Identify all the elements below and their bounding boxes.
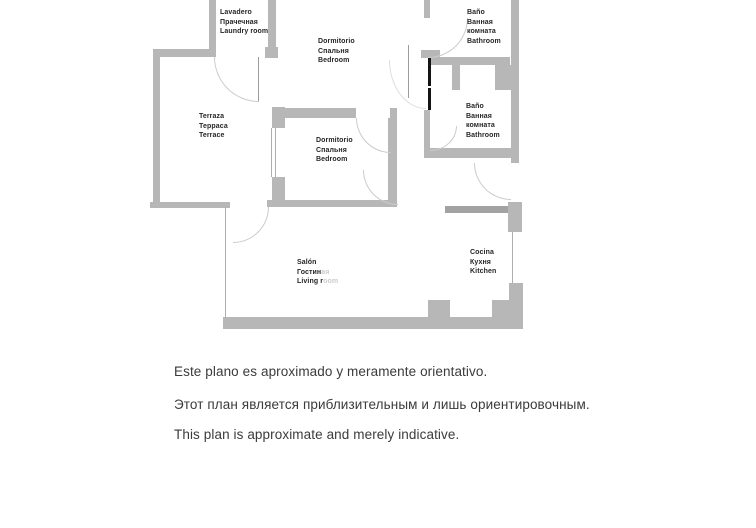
wall-salon-top	[267, 200, 397, 207]
room-label-dormitorio-1: Dormitorio Спальня Bedroom	[318, 37, 355, 66]
wall-window-stub-top	[272, 107, 285, 128]
room-label-line: Cocina	[470, 248, 496, 258]
room-label-line: Bathroom	[467, 37, 501, 47]
wall-bathroom-divider	[430, 57, 510, 65]
room-label-line: Кухня	[470, 258, 496, 268]
room-label-line: Baño	[466, 102, 500, 112]
wall-dormitorio1-bottom-stub	[390, 108, 397, 118]
door-arc-lavadero	[214, 57, 259, 102]
room-label-line: Спальня	[316, 146, 353, 156]
room-label-line: Terraza	[199, 112, 228, 122]
room-label-line: Terrace	[199, 131, 228, 141]
room-label-line: Терраса	[199, 122, 228, 132]
door-arc-salon-west	[233, 207, 269, 243]
floor-plan: Lavadero Прачечная Laundry room Dormitor…	[0, 0, 756, 345]
disclaimer-russian: Этот план является приблизительным и лиш…	[174, 397, 590, 412]
room-label-line: Ванная	[467, 18, 501, 28]
wall-left-outer	[153, 49, 160, 207]
wall-terraza-top	[153, 49, 216, 57]
room-label-line: Baño	[467, 8, 501, 18]
wall-dormitorio1-bottom	[277, 108, 356, 118]
disclaimer-spanish: Este plano es aproximado y meramente ori…	[174, 364, 487, 379]
wall-right-mid-block	[508, 202, 522, 232]
wall-bathroom1-left-top	[424, 0, 430, 18]
room-label-terraza: Terraza Терраса Terrace	[199, 112, 228, 141]
door-arc-hallway	[389, 60, 426, 109]
window-terraza-dormitorio-inner	[275, 128, 276, 177]
room-label-dormitorio-2: Dormitorio Спальня Bedroom	[316, 136, 353, 165]
closet-door-panel-1	[428, 58, 431, 86]
room-label-line: комната	[467, 27, 501, 37]
wall-cocina-top	[445, 206, 510, 213]
room-label-line: Kitchen	[470, 267, 496, 277]
wall-lavadero-corner	[265, 47, 278, 58]
door-arc-entry	[474, 163, 511, 200]
room-label-bano-2: Baño Ванная комната Bathroom	[466, 102, 500, 140]
wall-terraza-bottom	[150, 202, 230, 208]
room-label-line: Bedroom	[318, 56, 355, 66]
room-label-line: Ванная	[466, 112, 500, 122]
wall-lavadero-left	[209, 0, 216, 53]
room-label-line: Bedroom	[316, 155, 353, 165]
wall-bottom-band	[223, 317, 523, 329]
door-arc-dormitorio2	[356, 118, 391, 153]
window-terraza-dormitorio-outer	[271, 128, 272, 177]
room-label-lavadero: Lavadero Прачечная Laundry room	[220, 8, 268, 37]
room-label-cocina: Cocina Кухня Kitchen	[470, 248, 496, 277]
room-label-bano-1: Baño Ванная комната Bathroom	[467, 8, 501, 46]
wall-block-bottom-right	[492, 300, 523, 329]
wall-block-bottom-left-of-kitchen	[428, 300, 450, 317]
window-cocina-east	[512, 232, 513, 283]
wall-right-low-block	[509, 283, 523, 300]
room-label-line: Laundry room	[220, 27, 268, 37]
room-label-line: Bathroom	[466, 131, 500, 141]
room-label-line: Гостиная	[297, 268, 338, 278]
screenshot: Lavadero Прачечная Laundry room Dormitor…	[0, 0, 756, 528]
room-label-salon: Salón Гостиная Living room	[297, 258, 338, 287]
door-arc-bathroom1	[428, 18, 468, 58]
disclaimer-english: This plan is approximate and merely indi…	[174, 427, 459, 442]
wall-shaft-block	[495, 65, 519, 90]
room-label-line: Прачечная	[220, 18, 268, 28]
window-salon-west	[225, 207, 226, 318]
room-label-line: комната	[466, 121, 500, 131]
room-label-line: Dormitorio	[316, 136, 353, 146]
room-label-line: Lavadero	[220, 8, 268, 18]
wall-closet-right	[452, 65, 460, 90]
room-label-line: Living room	[297, 277, 338, 287]
room-label-line: Salón	[297, 258, 338, 268]
room-label-line: Dormitorio	[318, 37, 355, 47]
room-label-line: Спальня	[318, 47, 355, 57]
closet-door-panel-2	[428, 88, 431, 110]
